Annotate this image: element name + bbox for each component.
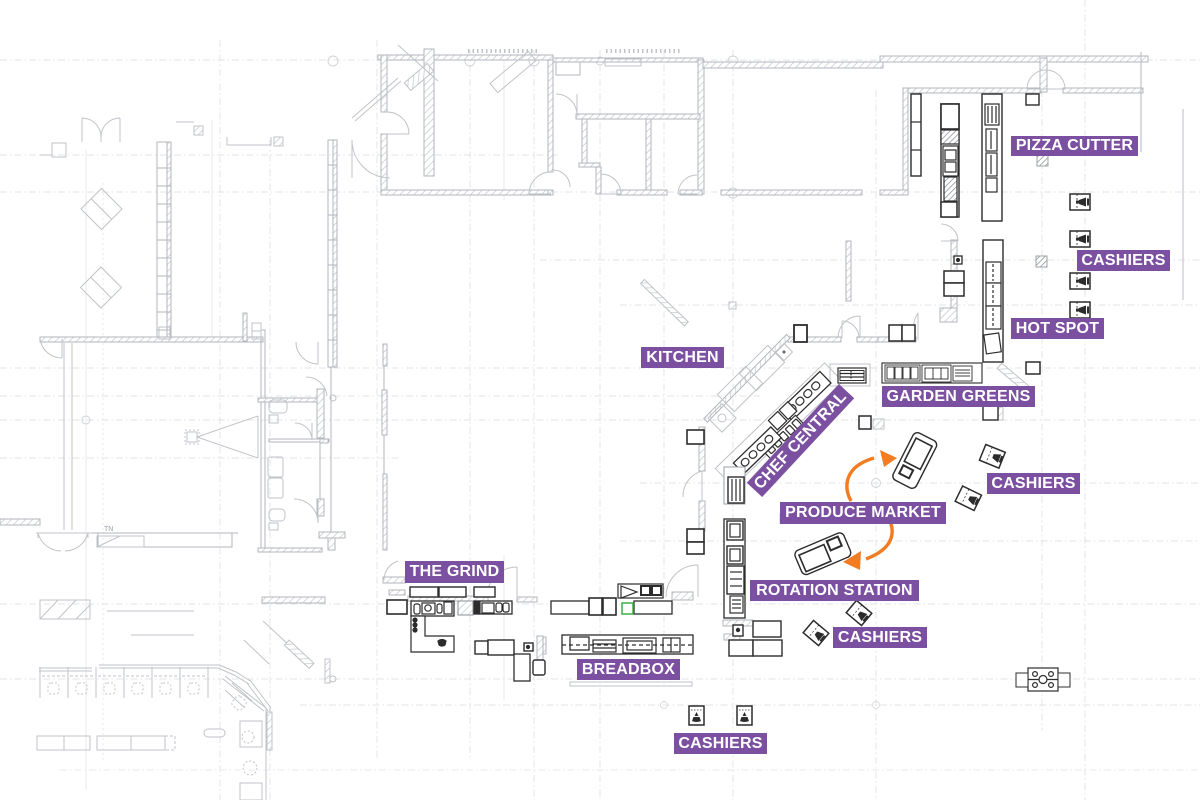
- svg-text:TN: TN: [104, 526, 113, 533]
